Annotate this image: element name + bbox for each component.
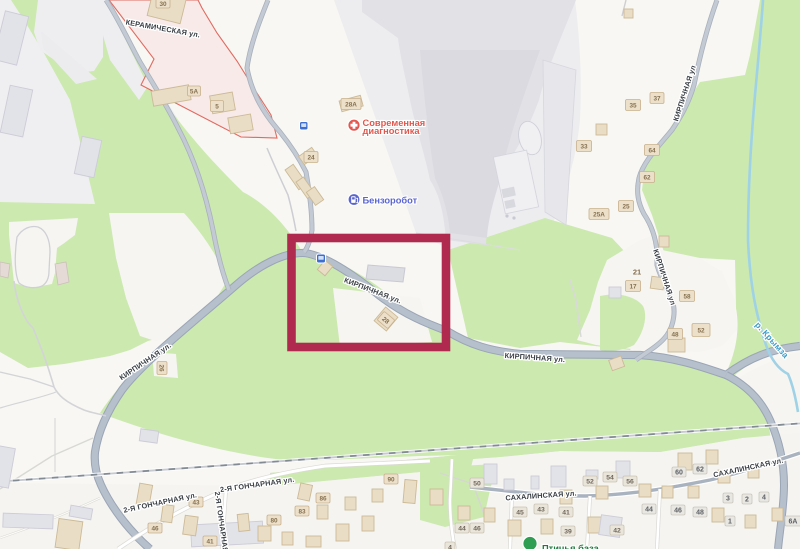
svg-text:90: 90	[387, 477, 395, 484]
svg-text:диагностика: диагностика	[363, 126, 421, 136]
svg-text:41: 41	[562, 510, 570, 517]
svg-text:30: 30	[159, 1, 167, 8]
svg-text:50: 50	[473, 481, 481, 488]
svg-text:4: 4	[448, 545, 452, 549]
svg-text:39: 39	[564, 529, 572, 536]
svg-text:80: 80	[270, 518, 278, 525]
svg-text:3: 3	[726, 496, 730, 503]
svg-text:28А: 28А	[345, 102, 357, 109]
svg-text:17: 17	[629, 284, 637, 291]
svg-text:44: 44	[458, 526, 466, 533]
svg-text:5: 5	[215, 104, 219, 111]
svg-text:52: 52	[697, 328, 705, 335]
svg-text:24: 24	[307, 155, 315, 162]
svg-text:44: 44	[645, 507, 653, 514]
svg-text:48: 48	[696, 510, 704, 517]
svg-text:43: 43	[537, 507, 545, 514]
svg-text:4: 4	[762, 495, 766, 502]
svg-text:83: 83	[298, 509, 306, 516]
svg-text:6А: 6А	[789, 519, 798, 526]
svg-text:60: 60	[675, 470, 683, 477]
svg-text:45: 45	[516, 510, 524, 517]
svg-text:46: 46	[473, 526, 481, 533]
svg-text:Птичья база: Птичья база	[542, 544, 600, 549]
svg-text:41: 41	[206, 539, 214, 546]
svg-text:5А: 5А	[190, 88, 199, 95]
svg-text:54: 54	[606, 475, 614, 482]
svg-text:43: 43	[192, 500, 200, 507]
svg-text:35: 35	[629, 103, 637, 110]
svg-text:26: 26	[158, 364, 165, 372]
svg-text:48: 48	[671, 332, 679, 339]
svg-text:2: 2	[745, 497, 749, 504]
svg-text:58: 58	[683, 294, 691, 301]
svg-text:25А: 25А	[593, 212, 605, 219]
svg-text:37: 37	[653, 96, 661, 103]
svg-text:64: 64	[648, 148, 656, 155]
svg-text:62: 62	[696, 467, 704, 474]
svg-text:86: 86	[319, 496, 327, 503]
svg-text:25: 25	[622, 204, 630, 211]
svg-text:21: 21	[633, 268, 641, 277]
svg-text:46: 46	[674, 508, 682, 515]
svg-text:52: 52	[586, 479, 594, 486]
svg-text:62: 62	[643, 175, 651, 182]
svg-text:Бензоробот: Бензоробот	[363, 195, 418, 205]
svg-text:42: 42	[613, 528, 621, 535]
svg-text:56: 56	[626, 479, 634, 486]
svg-text:46: 46	[151, 526, 159, 533]
svg-text:1: 1	[728, 519, 732, 526]
svg-text:33: 33	[580, 144, 588, 151]
